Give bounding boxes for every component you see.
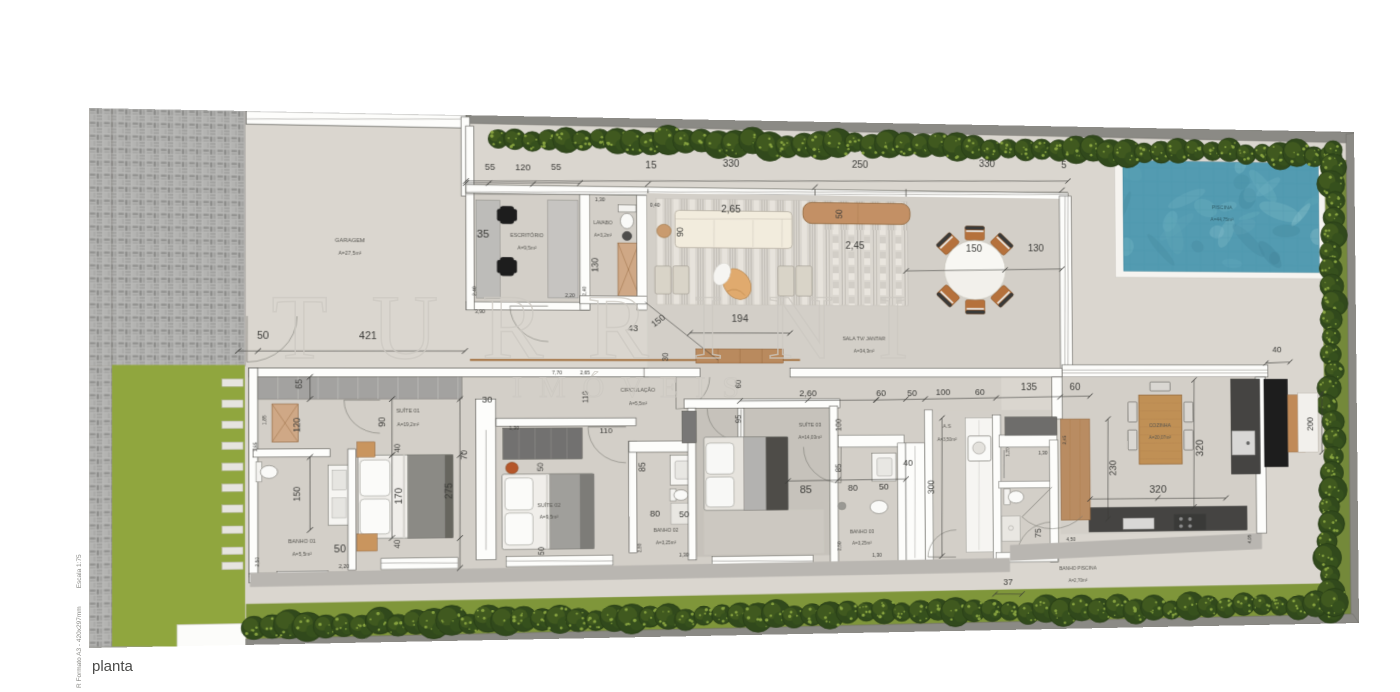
svg-text:60: 60 [733,379,743,388]
svg-text:150: 150 [966,245,982,255]
svg-text:60: 60 [975,388,985,398]
svg-text:110: 110 [580,391,590,404]
svg-text:194: 194 [732,315,749,325]
svg-text:A=20,07m²: A=20,07m² [1149,435,1171,440]
svg-text:A=2,70m²: A=2,70m² [1068,578,1087,584]
svg-text:4,05: 4,05 [1247,534,1252,543]
svg-text:A=9,5m²: A=9,5m² [540,515,559,521]
svg-text:150: 150 [292,487,303,502]
svg-text:100: 100 [833,418,842,431]
svg-text:40: 40 [392,539,402,548]
svg-text:43: 43 [628,324,638,334]
svg-text:GARAGEM: GARAGEM [335,238,365,244]
svg-text:A=5,5m²: A=5,5m² [629,401,648,407]
svg-text:2,50: 2,50 [637,543,643,553]
svg-text:A.S: A.S [943,424,951,429]
svg-text:50: 50 [834,209,844,219]
svg-text:2,20: 2,20 [339,564,349,570]
svg-text:50: 50 [907,389,917,399]
svg-text:55: 55 [551,163,561,173]
svg-text:A=5,5m²: A=5,5m² [292,552,312,558]
svg-text:110: 110 [599,426,612,435]
svg-text:170: 170 [394,488,405,505]
svg-text:50: 50 [879,483,889,493]
svg-text:1,85: 1,85 [262,415,268,425]
svg-text:130: 130 [590,258,601,273]
svg-text:40: 40 [1272,345,1281,355]
svg-text:A=3,25m²: A=3,25m² [656,540,677,546]
svg-text:75: 75 [1034,528,1044,537]
svg-text:85: 85 [833,463,842,472]
svg-text:250: 250 [852,161,869,171]
svg-text:A=3,25m²: A=3,25m² [852,541,872,547]
svg-text:50: 50 [536,546,546,555]
svg-text:55: 55 [485,163,495,173]
svg-text:2,45: 2,45 [845,242,864,252]
svg-text:4,50: 4,50 [1066,537,1075,542]
svg-text:320: 320 [1149,485,1166,496]
svg-text:90: 90 [377,417,388,427]
svg-text:A=14,03m²: A=14,03m² [798,435,822,441]
svg-text:30: 30 [660,352,670,361]
svg-text:85: 85 [800,485,812,496]
svg-text:CIRCULAÇÃO: CIRCULAÇÃO [621,387,656,393]
svg-text:65: 65 [294,379,305,389]
svg-text:330: 330 [979,160,995,170]
svg-text:30: 30 [482,396,492,406]
svg-text:100: 100 [936,388,951,398]
svg-text:1,85: 1,85 [253,442,259,452]
svg-text:BANHO 01: BANHO 01 [288,539,315,545]
svg-text:2,45: 2,45 [1062,435,1068,444]
svg-text:50: 50 [535,462,545,471]
svg-text:1,30: 1,30 [509,426,519,432]
svg-text:330: 330 [723,160,740,170]
svg-text:80: 80 [650,510,660,520]
svg-text:200: 200 [1306,417,1316,431]
svg-text:275: 275 [444,483,455,500]
svg-text:15: 15 [645,161,656,171]
svg-text:SUÍTE 03: SUÍTE 03 [799,422,821,428]
svg-text:421: 421 [359,332,377,342]
svg-text:80: 80 [848,484,858,494]
svg-text:135: 135 [1021,383,1037,393]
svg-text:230: 230 [1109,460,1119,476]
svg-text:300: 300 [927,480,937,494]
svg-text:2,50: 2,50 [837,541,843,550]
svg-text:50: 50 [257,331,269,341]
svg-text:LAVABO: LAVABO [594,220,613,226]
svg-text:7,70: 7,70 [552,370,562,376]
svg-text:A=27,5m²: A=27,5m² [338,251,361,257]
svg-text:60: 60 [876,389,886,399]
svg-text:1,30: 1,30 [1038,451,1047,456]
svg-text:60: 60 [1070,383,1081,393]
svg-text:BANHO 02: BANHO 02 [653,528,678,534]
svg-text:2,65: 2,65 [721,205,741,215]
svg-text:120: 120 [515,163,531,173]
svg-text:PISCINA: PISCINA [1212,205,1233,211]
svg-text:SUÍTE 01: SUÍTE 01 [396,408,420,415]
svg-text:2,40: 2,40 [472,286,478,296]
svg-text:50: 50 [334,544,346,554]
svg-text:90: 90 [675,227,686,237]
svg-text:50: 50 [679,510,689,520]
svg-text:SUÍTE 02: SUÍTE 02 [537,502,560,509]
svg-text:2,20: 2,20 [565,293,575,299]
svg-text:320: 320 [1195,440,1206,457]
svg-text:A=9,5m²: A=9,5m² [518,246,537,252]
svg-text:A=3,2m²: A=3,2m² [594,233,612,239]
svg-text:1,30: 1,30 [595,197,605,203]
svg-text:2,40: 2,40 [582,286,588,295]
svg-text:2,50: 2,50 [255,557,261,567]
svg-text:95: 95 [733,414,743,423]
svg-text:1,20: 1,20 [1005,447,1011,456]
svg-text:A=19,2m²: A=19,2m² [397,422,419,428]
svg-text:0,40: 0,40 [650,203,660,209]
svg-text:37: 37 [1003,578,1013,588]
svg-text:ESCRITÓRIO: ESCRITÓRIO [510,232,543,239]
svg-text:70: 70 [459,450,470,460]
svg-text:3,90: 3,90 [475,309,485,315]
svg-text:120: 120 [292,418,303,433]
svg-text:35: 35 [477,230,490,241]
svg-text:A=34,3m²: A=34,3m² [854,349,875,354]
svg-text:BANHO PISCINA: BANHO PISCINA [1059,566,1097,572]
svg-text:1,30: 1,30 [872,553,882,559]
svg-text:BANHO 03: BANHO 03 [850,529,874,535]
svg-text:SALA TV/ JANTAR: SALA TV/ JANTAR [842,336,885,342]
svg-text:1,30: 1,30 [679,553,689,559]
svg-text:A=3,50m²: A=3,50m² [937,437,957,442]
svg-text:40: 40 [903,459,913,469]
svg-text:2,60: 2,60 [799,389,816,399]
svg-text:A=44,75m²: A=44,75m² [1211,217,1234,223]
svg-text:40: 40 [392,443,402,452]
svg-text:85: 85 [637,462,648,472]
svg-text:COZINHA: COZINHA [1149,423,1171,428]
svg-text:2,65: 2,65 [580,370,590,376]
svg-text:5: 5 [1061,161,1067,171]
svg-text:130: 130 [1028,244,1044,254]
